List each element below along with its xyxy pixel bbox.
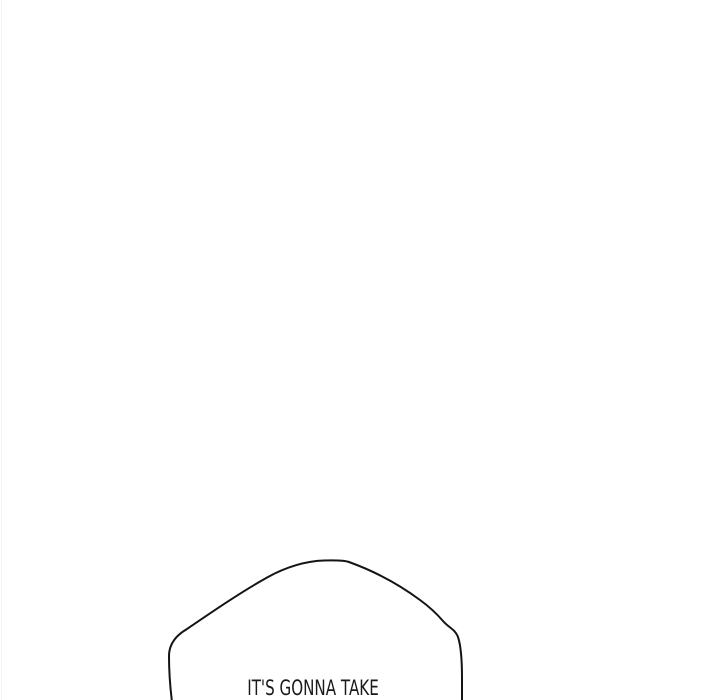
speech-bubble-text: IT'S GONNA TAKE	[205, 677, 421, 699]
comic-panel: IT'S GONNA TAKE	[0, 0, 720, 700]
speech-bubble	[0, 0, 720, 700]
